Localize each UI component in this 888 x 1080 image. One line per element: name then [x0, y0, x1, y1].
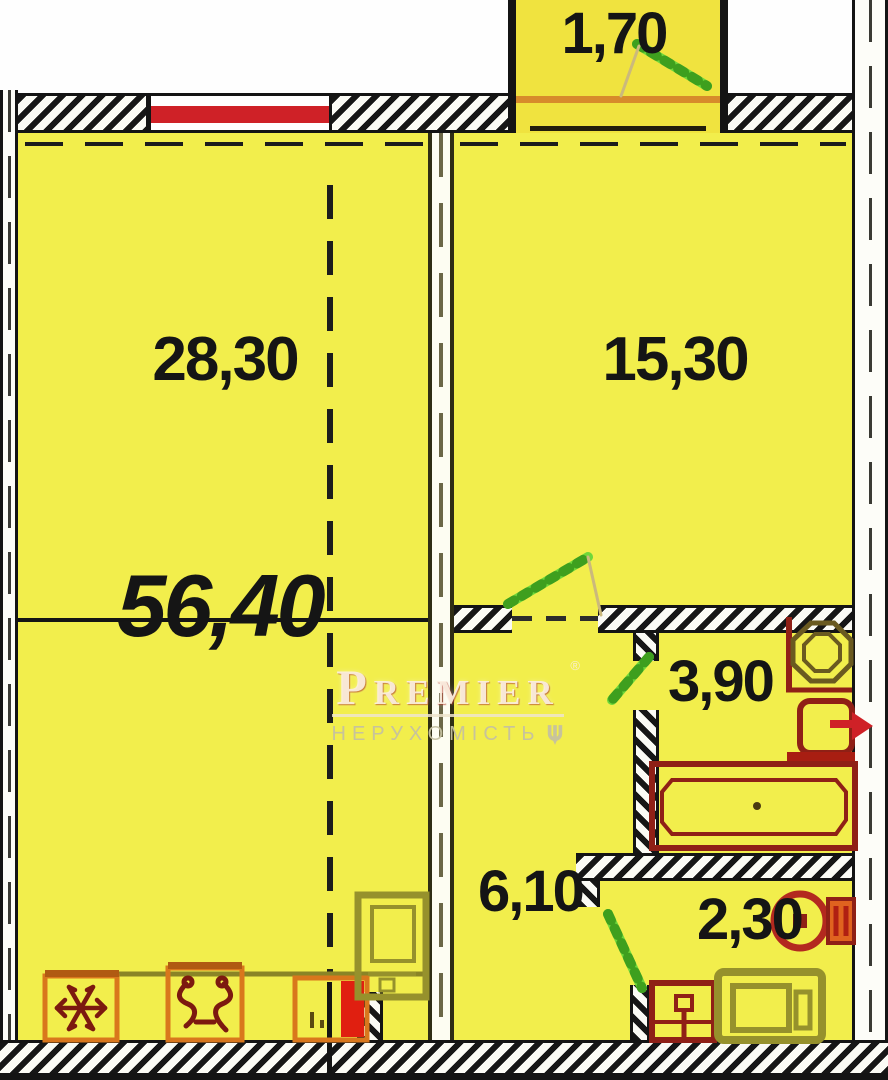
wall-top-right	[728, 93, 852, 133]
floor-plan: 1,70 28,30 15,30 56,40 3,90 6,10 2,30 Pr…	[0, 0, 888, 1080]
wall-wc-stub-bottom	[630, 985, 650, 1040]
wall-top-mid	[332, 93, 508, 133]
window-red-bar	[150, 106, 330, 123]
area-label-hallway: 6,10	[448, 862, 613, 923]
trident-icon	[546, 724, 564, 746]
balcony-sill	[530, 126, 706, 131]
window	[148, 93, 332, 133]
wall-left	[0, 90, 18, 1080]
wall-bottom-edge	[0, 1076, 888, 1080]
overhang-dashed-left	[25, 142, 425, 146]
wall-right	[852, 0, 888, 1080]
area-label-bathroom: 3,90	[638, 652, 803, 713]
area-label-bedroom: 15,30	[530, 327, 820, 392]
overhang-dashed-right	[460, 142, 846, 146]
window-frame-tick	[146, 93, 151, 133]
watermark-trademark: ®	[570, 658, 580, 673]
wall-bath-bottom	[576, 853, 852, 881]
area-label-total: 56,40	[55, 560, 385, 652]
wall-top-left	[18, 93, 148, 133]
wall-bath-left	[633, 710, 659, 855]
watermark: Premier ® НЕРУХОМІСТЬ	[328, 662, 568, 746]
balcony-threshold	[516, 96, 720, 103]
area-label-balcony: 1,70	[514, 4, 714, 65]
area-label-wc: 2,30	[662, 890, 837, 951]
wall-bedroom-bottom-left	[454, 605, 512, 633]
wall-kitchen-stub	[357, 992, 383, 1040]
area-label-living-kitchen: 28,30	[75, 327, 375, 392]
zone-divider-extension	[327, 982, 332, 1077]
watermark-brand: Premier	[328, 662, 568, 712]
wall-bedroom-bottom-right	[598, 605, 852, 633]
wall-bottom	[0, 1040, 888, 1076]
watermark-subtitle: НЕРУХОМІСТЬ	[332, 723, 541, 746]
bedroom-door-threshold	[512, 616, 598, 621]
